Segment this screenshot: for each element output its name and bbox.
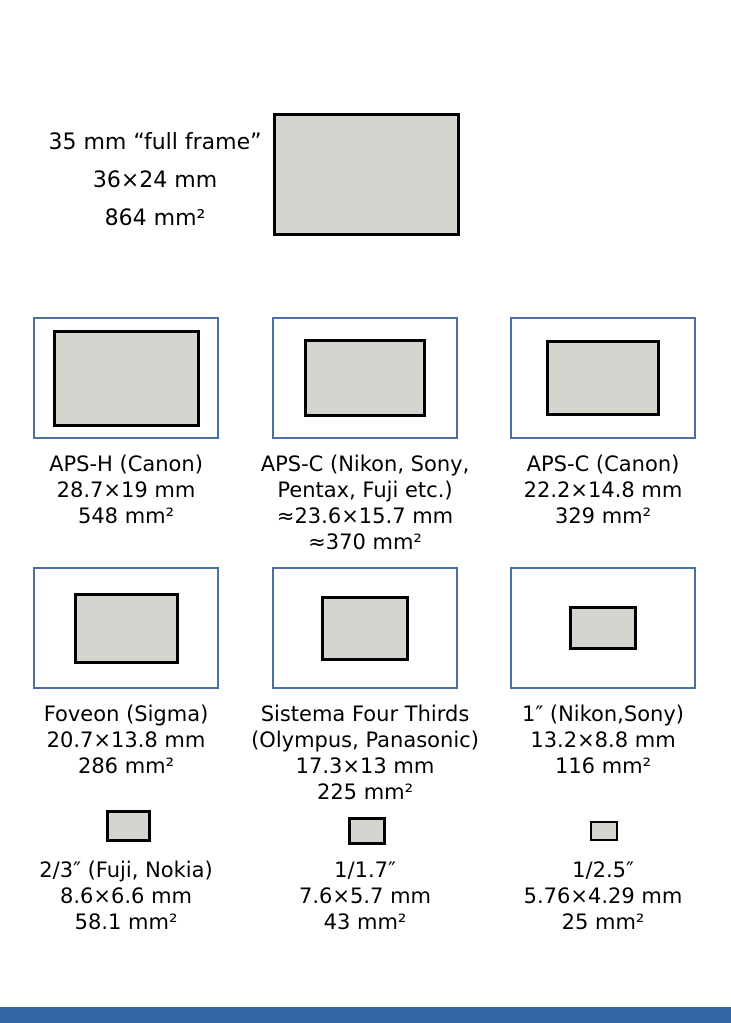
sensor-name: Foveon (Sigma) [0,701,256,727]
aps-h-canon-cell [33,317,219,439]
two-thirds-inch-label: 2/3″ (Fuji, Nokia) 8.6×6.6 mm 58.1 mm² [0,857,256,935]
full-frame-title: 35 mm “full frame” [25,124,285,162]
aps-c-canon-sensor-rect [546,340,660,416]
sensor-name: APS-C (Canon) [473,451,731,477]
one-inch-cell [510,567,696,689]
sensor-dimensions: 28.7×19 mm [0,477,256,503]
sensor-name: 1/1.7″ [235,857,495,883]
sensor-area: 116 mm² [473,753,731,779]
four-thirds-sensor-rect [321,596,409,661]
sensor-area: 225 mm² [235,779,495,805]
aps-c-nikon-sensor-rect [304,339,426,417]
sensor-area: 286 mm² [0,753,256,779]
sensor-dimensions: 17.3×13 mm [235,753,495,779]
one-one-seven-inch-label: 1/1.7″ 7.6×5.7 mm 43 mm² [235,857,495,935]
sensor-name-2: (Olympus, Panasonic) [235,727,495,753]
one-two-five-inch-sensor-rect [590,821,618,841]
sensor-dimensions: 22.2×14.8 mm [473,477,731,503]
sensor-dimensions: 7.6×5.7 mm [235,883,495,909]
foveon-sigma-sensor-rect [74,593,179,664]
aps-c-nikon-label: APS-C (Nikon, Sony, Pentax, Fuji etc.) ≈… [235,451,495,555]
sensor-name: 1/2.5″ [473,857,731,883]
sensor-dimensions: 13.2×8.8 mm [473,727,731,753]
one-one-seven-inch-sensor-rect [348,817,386,845]
aps-h-canon-sensor-rect [53,330,200,427]
aps-c-nikon-cell [272,317,458,439]
one-inch-sensor-rect [569,606,637,650]
sensor-area: 548 mm² [0,503,256,529]
sensor-dimensions: 8.6×6.6 mm [0,883,256,909]
sensor-name: 2/3″ (Fuji, Nokia) [0,857,256,883]
sensor-name: 1″ (Nikon,Sony) [473,701,731,727]
sensor-name: APS-C (Nikon, Sony, [235,451,495,477]
sensor-name: Sistema Four Thirds [235,701,495,727]
four-thirds-label: Sistema Four Thirds (Olympus, Panasonic)… [235,701,495,805]
foveon-sigma-label: Foveon (Sigma) 20.7×13.8 mm 286 mm² [0,701,256,779]
sensor-dimensions: 5.76×4.29 mm [473,883,731,909]
one-two-five-inch-label: 1/2.5″ 5.76×4.29 mm 25 mm² [473,857,731,935]
sensor-area: 43 mm² [235,909,495,935]
sensor-name: APS-H (Canon) [0,451,256,477]
sensor-area: 58.1 mm² [0,909,256,935]
one-inch-label: 1″ (Nikon,Sony) 13.2×8.8 mm 116 mm² [473,701,731,779]
sensor-area: 25 mm² [473,909,731,935]
sensor-size-diagram: 35 mm “full frame” 36×24 mm 864 mm² APS-… [0,0,731,1023]
four-thirds-cell [272,567,458,689]
full-frame-sensor-rect [273,113,460,236]
aps-h-canon-label: APS-H (Canon) 28.7×19 mm 548 mm² [0,451,256,529]
full-frame-label-block: 35 mm “full frame” 36×24 mm 864 mm² [25,124,285,238]
aps-c-canon-label: APS-C (Canon) 22.2×14.8 mm 329 mm² [473,451,731,529]
sensor-name-2: Pentax, Fuji etc.) [235,477,495,503]
full-frame-dimensions: 36×24 mm [25,162,285,200]
sensor-dimensions: ≈23.6×15.7 mm [235,503,495,529]
aps-c-canon-cell [510,317,696,439]
sensor-dimensions: 20.7×13.8 mm [0,727,256,753]
sensor-area: ≈370 mm² [235,529,495,555]
full-frame-area: 864 mm² [25,200,285,238]
footer-bar [0,1007,731,1023]
two-thirds-inch-sensor-rect [106,810,151,842]
sensor-area: 329 mm² [473,503,731,529]
foveon-sigma-cell [33,567,219,689]
